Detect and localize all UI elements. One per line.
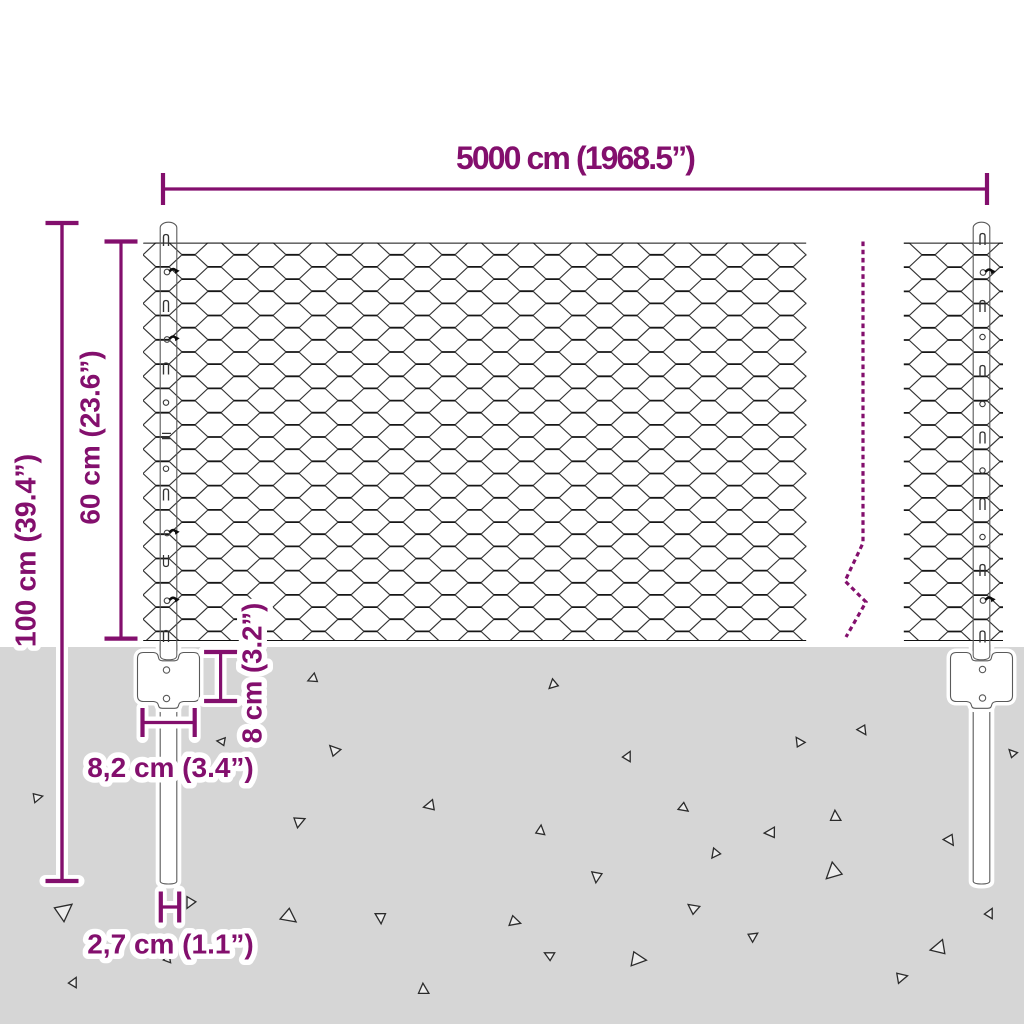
svg-text:60 cm (23.6”): 60 cm (23.6”) bbox=[75, 350, 106, 524]
svg-text:8,2 cm (3.4”): 8,2 cm (3.4”) bbox=[87, 752, 254, 783]
svg-text:5000 cm (1968.5”): 5000 cm (1968.5”) bbox=[456, 140, 695, 176]
svg-text:2,7 cm (1.1”): 2,7 cm (1.1”) bbox=[87, 929, 254, 960]
svg-text:100 cm (39.4”): 100 cm (39.4”) bbox=[11, 454, 43, 647]
svg-text:8 cm (3.2”): 8 cm (3.2”) bbox=[237, 603, 268, 744]
